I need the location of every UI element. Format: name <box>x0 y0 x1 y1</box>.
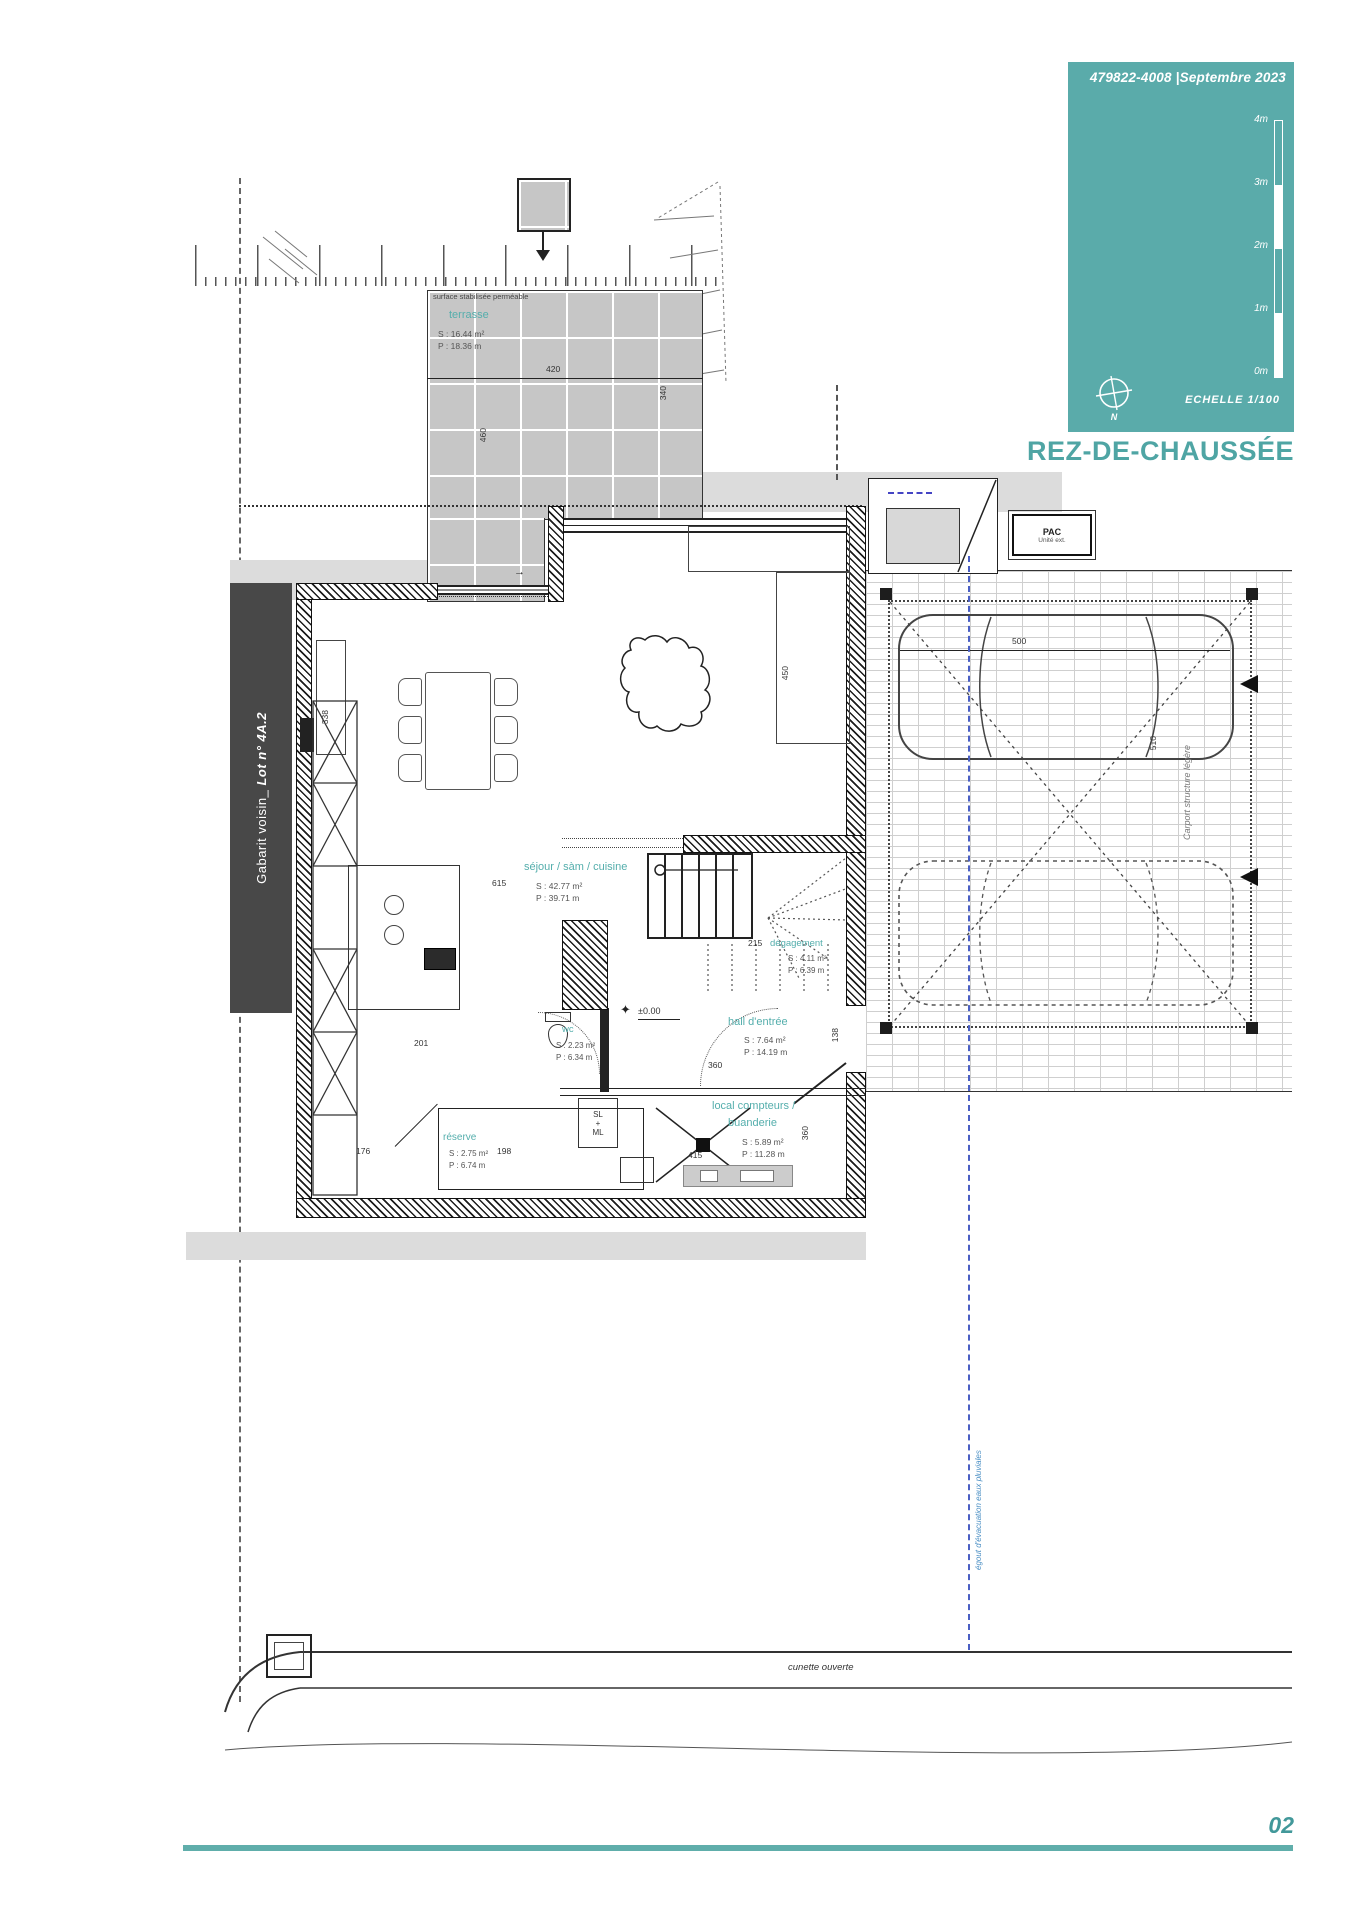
chair <box>494 716 518 744</box>
dim-500: 500 <box>1012 636 1026 646</box>
sejour-perimeter: P : 39.71 m <box>536 892 579 904</box>
dim-215: 215 <box>748 938 762 948</box>
reserve-perimeter: P : 6.74 m <box>449 1160 485 1172</box>
page-number: 02 <box>1230 1812 1294 1839</box>
rainwater-label: égout d'évacuation eaux pluviales <box>974 1290 983 1570</box>
degagement-surface: S : 4.11 m² <box>788 953 827 965</box>
reserve-door-leaf <box>395 1104 438 1147</box>
fence-line <box>836 385 838 480</box>
dim-340: 340 <box>658 386 668 400</box>
dim-460: 460 <box>478 428 488 442</box>
local-surface: S : 5.89 m² <box>742 1136 784 1148</box>
storage-box <box>620 1157 654 1183</box>
entrance-door-leaf <box>793 1062 846 1104</box>
terrace-surface: S : 16.44 m² <box>438 328 484 340</box>
dim-615: 615 <box>492 878 506 888</box>
terrace-surface-note: surface stabilisée perméable <box>433 292 528 301</box>
hall-label: hall d'entrée <box>728 1016 788 1028</box>
dim-450: 450 <box>780 666 790 680</box>
local-label-line1: local compteurs / <box>712 1100 795 1112</box>
dim-138: 138 <box>830 1028 840 1042</box>
scale-text: ECHELLE 1/100 <box>1128 394 1280 406</box>
terrace-perimeter: P : 18.36 m <box>438 340 481 352</box>
terrace-paving <box>427 290 703 520</box>
project-date: Septembre 2023 <box>1180 70 1286 85</box>
dryer-label: SL <box>593 1110 603 1119</box>
dim-201: 201 <box>414 1038 428 1048</box>
local-label-line2: buanderie <box>728 1117 777 1129</box>
sejour-label: séjour / sàm / cuisine <box>524 861 627 873</box>
dim-360-local: 360 <box>800 1126 810 1140</box>
opening-dotted <box>562 838 683 848</box>
exterior-element-block <box>517 178 571 232</box>
pac-sublabel: Unité ext. <box>1038 537 1065 544</box>
degagement-label: dégagement <box>770 938 823 949</box>
terrace-sliding-door <box>438 585 548 595</box>
car-outline-2-dashed <box>896 858 1236 1008</box>
wall-north-west <box>296 583 438 600</box>
wall-south <box>296 1198 866 1218</box>
dim-420: 420 <box>546 364 560 374</box>
project-reference: 479822-4008 |Septembre 2023 <box>1068 70 1286 85</box>
wc-label: wc <box>562 1024 574 1035</box>
floor-plan-sheet: 479822-4008 |Septembre 2023 4m 3m 2m 1m … <box>0 0 1358 1920</box>
scale-label-2m: 2m <box>1234 240 1268 251</box>
rainwater-drain-line <box>968 556 970 1650</box>
chair <box>398 754 422 782</box>
hall-surface: S : 7.64 m² <box>744 1034 786 1046</box>
slope-hatch-marks <box>255 225 325 295</box>
utility-box <box>700 1170 718 1182</box>
cunette-label: cunette ouverte <box>788 1662 854 1673</box>
down-arrow-icon <box>536 250 550 261</box>
graphic-scale-bar <box>1274 120 1283 378</box>
animal-skin-rug <box>615 632 715 737</box>
manhole-inner <box>274 1642 304 1670</box>
car-entry-arrow <box>1240 675 1258 693</box>
block-arrow-stem <box>542 232 544 250</box>
dim-line-420 <box>427 378 703 379</box>
plus-sign: + <box>596 1119 601 1128</box>
dining-table <box>425 672 491 790</box>
degagement-perimeter: P : 6.39 m <box>788 965 824 977</box>
scale-label-0m: 0m <box>1234 366 1268 377</box>
local-perimeter: P : 11.28 m <box>742 1148 785 1160</box>
wc-perimeter: P : 6.34 m <box>556 1052 592 1064</box>
pac-inner-box: PAC Unité ext. <box>1012 514 1092 556</box>
kitchen-counter <box>348 865 460 1010</box>
dim-176: 176 <box>356 1146 370 1156</box>
washer-dryer-stack: SL + ML <box>578 1098 618 1148</box>
dim-415: 415 <box>688 1150 702 1160</box>
fridge-unit <box>562 920 608 1010</box>
dim-line-500 <box>900 650 1230 651</box>
project-ref-number: 479822-4008 <box>1090 70 1172 85</box>
sofa-seat <box>688 526 850 572</box>
sheet-title: REZ-DE-CHAUSSÉE <box>860 436 1294 467</box>
scale-label-4m: 4m <box>1234 114 1268 125</box>
carport-column <box>1246 1022 1258 1034</box>
hob-burner <box>384 895 404 915</box>
dim-360-hall: 360 <box>708 1060 722 1070</box>
sofa-chaise <box>776 572 850 744</box>
level-underline <box>638 1019 680 1020</box>
wall-north-corner <box>548 506 564 602</box>
wall-west <box>296 583 312 1216</box>
title-block: 479822-4008 |Septembre 2023 4m 3m 2m 1m … <box>1068 62 1294 432</box>
kitchen-sink <box>424 948 456 970</box>
chair <box>398 678 422 706</box>
porch-step <box>886 508 960 564</box>
chair <box>494 678 518 706</box>
carport-column <box>880 588 892 600</box>
neighbor-gabarit-bar: Gabarit voisin_ Lot n° 4A.2 <box>230 583 292 1013</box>
reserve-label: réserve <box>443 1132 476 1143</box>
carport-column <box>880 1022 892 1034</box>
pac-outer-box: PAC Unité ext. <box>1008 510 1096 560</box>
scale-label-3m: 3m <box>1234 177 1268 188</box>
hob-burner <box>384 925 404 945</box>
north-letter: N <box>1092 412 1136 422</box>
wc-surface: S : 2.23 m² <box>556 1040 595 1052</box>
level-value: ±0.00 <box>638 1006 660 1016</box>
terrace-label: terrasse <box>449 309 489 321</box>
dim-338: 338 <box>320 710 330 724</box>
chair <box>398 716 422 744</box>
car-entry-arrow <box>1240 868 1258 886</box>
reserve-surface: S : 2.75 m² <box>449 1148 488 1160</box>
hall-perimeter: P : 14.19 m <box>744 1046 787 1058</box>
carport-column <box>1246 588 1258 600</box>
toilet-tank <box>545 1012 571 1022</box>
pac-label: PAC <box>1043 527 1061 537</box>
rain-pipe-dashes <box>888 492 932 494</box>
footer-rule <box>183 1845 1293 1851</box>
neighbor-lot: Lot n° 4A.2 <box>254 712 269 786</box>
carport-label: Carport structure légère <box>1182 640 1192 840</box>
dim-198: 198 <box>497 1146 511 1156</box>
chair <box>494 754 518 782</box>
washer-label: ML <box>592 1128 603 1137</box>
staircase <box>608 848 850 1002</box>
dim-510: 510 <box>1148 736 1158 750</box>
sejour-surface: S : 42.77 m² <box>536 880 582 892</box>
utility-box <box>740 1170 774 1182</box>
scale-label-1m: 1m <box>1234 303 1268 314</box>
footprint-wash-bottom <box>186 1232 866 1260</box>
slide-direction-arrow: → <box>514 566 525 578</box>
road-channel <box>180 1600 1300 1800</box>
neighbor-prefix: Gabarit voisin_ <box>254 786 269 884</box>
partition-hall-local <box>560 1088 866 1096</box>
manhole <box>266 1634 312 1678</box>
partition-wc <box>600 1008 609 1092</box>
level-star-icon: ✦ <box>620 1002 631 1018</box>
